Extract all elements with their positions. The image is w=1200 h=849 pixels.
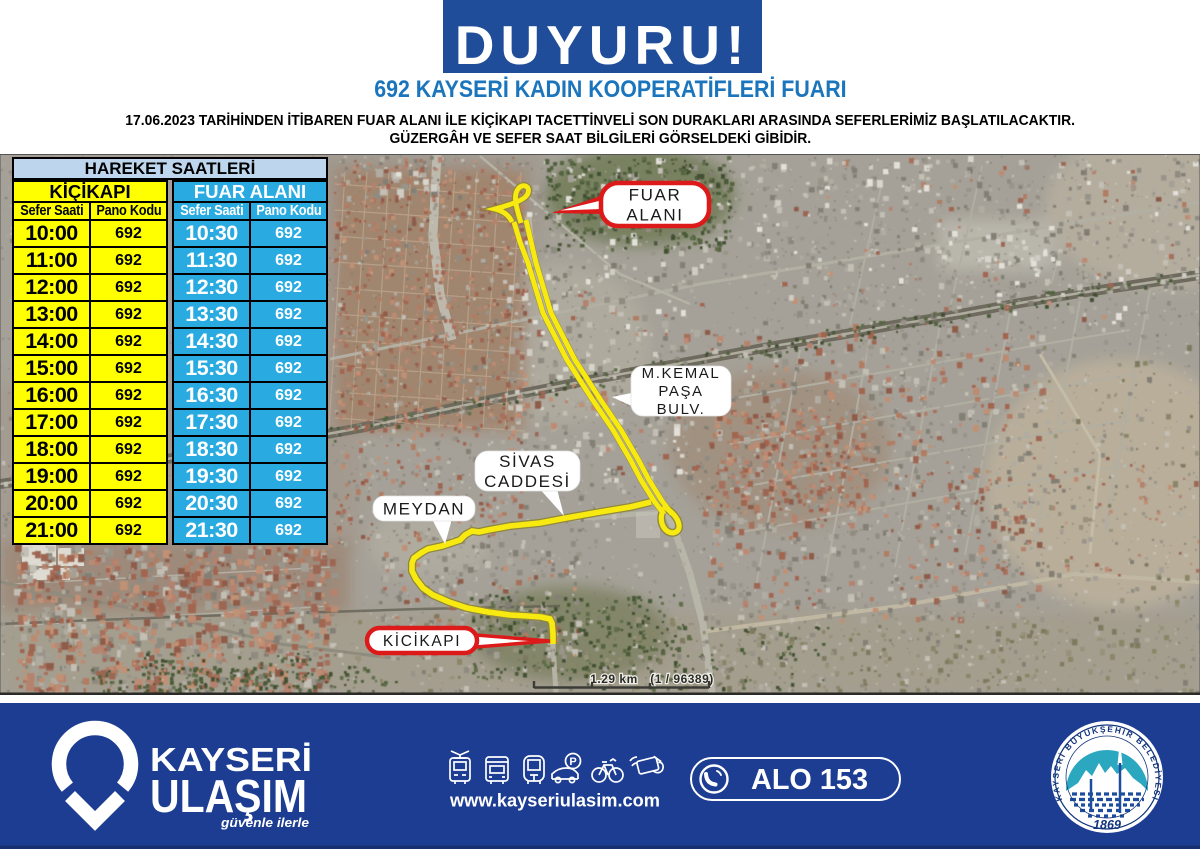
svg-text:FUAR: FUAR (629, 186, 682, 205)
svg-text:SİVAS: SİVAS (499, 452, 556, 471)
svg-text:ALANI: ALANI (626, 206, 683, 225)
svg-text:www.kayseriulasim.com: www.kayseriulasim.com (449, 790, 660, 811)
svg-text:1869: 1869 (1093, 818, 1121, 832)
svg-text:ALO 153: ALO 153 (751, 764, 868, 796)
svg-text:1.29 km: 1.29 km (590, 672, 638, 686)
svg-text:güvenle ilerle: güvenle ilerle (220, 815, 309, 830)
svg-text:M.KEMAL: M.KEMAL (642, 365, 721, 382)
svg-text:KİCİKAPI: KİCİKAPI (383, 632, 461, 650)
svg-text:CADDESİ: CADDESİ (484, 472, 571, 491)
svg-text:BULV.: BULV. (657, 401, 706, 418)
svg-text:PAŞA: PAŞA (658, 383, 703, 400)
svg-text:P: P (569, 756, 576, 768)
svg-text:(1 / 96389): (1 / 96389) (650, 672, 714, 686)
svg-text:MEYDAN: MEYDAN (383, 499, 465, 518)
